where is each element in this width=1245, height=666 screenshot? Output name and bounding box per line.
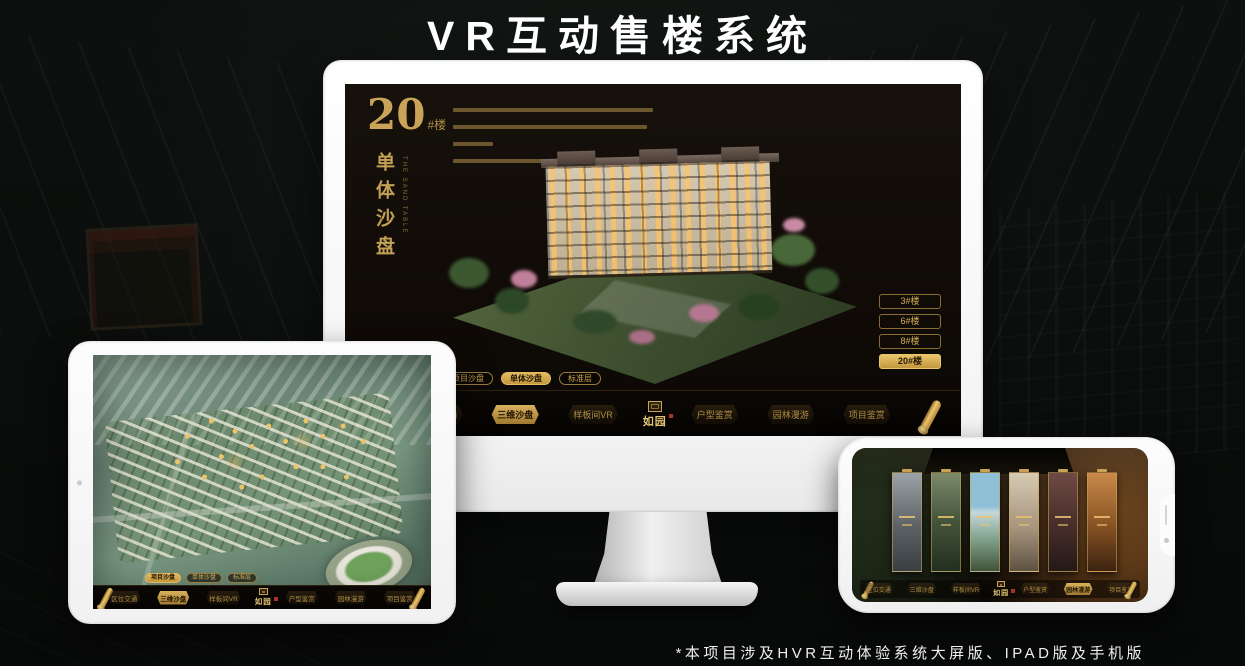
tablet-camera-icon [77,480,82,485]
building-model-scene[interactable] [453,142,857,388]
nav-item-unit-appreciation[interactable]: 户型鉴赏 [283,591,321,605]
aerial-estate[interactable] [104,392,403,563]
building-number: 20 [367,94,425,136]
floor-button-8[interactable]: 8#楼 [879,334,941,349]
nav-item-project-appreciation[interactable]: 项目鉴赏 [839,405,895,424]
nav-item-garden-roam-active[interactable]: 园林漫游 [1061,583,1095,595]
speaker-slit-icon [1165,505,1167,525]
front-camera-icon [1164,538,1169,543]
blossom-tree [511,270,537,288]
brand-logo: 如园 [993,581,1009,598]
subtab-single-sandbox[interactable]: 单体沙盘 [186,573,222,583]
scene-panel-facade[interactable] [1009,472,1039,572]
nav-item-3d-sandbox-active[interactable]: 三维沙盘 [487,405,543,424]
building-heading: 20#楼 [367,94,446,136]
blossom-tree [629,330,655,344]
brand-logo: 如园 [255,588,272,607]
panel-label [902,524,912,526]
nav-item-garden-roam[interactable]: 园林漫游 [763,405,819,424]
aerial-road [93,492,431,524]
tablet-frame: 项目沙盘 单体沙盘 标准层 区位交通 三维沙盘 样板间VR 如园 户型鉴赏 园林… [68,341,456,624]
seal-icon [259,588,268,595]
seal-icon [997,581,1005,587]
subtab-project-sandbox-active[interactable]: 项目沙盘 [145,573,181,583]
vertical-subtitle: 单体沙盘 [371,152,398,264]
footnote: *本项目涉及HVR互动体验系统大屏版、IPAD版及手机版 [676,642,1145,663]
building-markers[interactable] [93,355,431,609]
panel-label [1019,524,1029,526]
vertical-subtitle-en: THE SAND TABLE [401,156,407,234]
panel-label [899,516,915,518]
tree [771,234,815,266]
panel-label [977,516,993,518]
nav-item-unit-appreciation[interactable]: 户型鉴赏 [1018,583,1052,595]
tablet-device: 项目沙盘 单体沙盘 标准层 区位交通 三维沙盘 样板间VR 如园 户型鉴赏 园林… [68,341,456,624]
floor-button-group: 3#楼 6#楼 8#楼 20#楼 [879,294,941,369]
phone-screen: 区位交通 三维沙盘 样板间VR 如园 户型鉴赏 园林漫游 项目鉴赏 [852,448,1148,602]
nav-item-showroom-vr[interactable]: 样板间VR [948,583,984,595]
scene-panel-exterior-day[interactable] [970,472,1000,572]
tree [805,268,839,294]
subtab-standard-floor[interactable]: 标准层 [559,372,601,385]
nav-item-location-traffic[interactable]: 区位交通 [862,583,896,595]
roof-cap [721,146,759,160]
seal-icon [648,401,662,412]
phone-navbar: 区位交通 三维沙盘 样板间VR 如园 户型鉴赏 园林漫游 项目鉴赏 [860,580,1140,598]
tree [573,310,617,334]
floor-button-6[interactable]: 6#楼 [879,314,941,329]
background-framed-sign [85,223,202,331]
brand-logo: 如园 [643,401,667,429]
subtab-standard-floor[interactable]: 标准层 [227,573,257,583]
brand-logo-text: 如园 [993,588,1009,598]
background-buildings-right [999,190,1239,471]
scene-panel-interior[interactable] [1087,472,1117,572]
nav-item-location-traffic[interactable]: 区位交通 [105,591,143,605]
aerial-city-blocks [93,355,431,445]
tablet-navbar: 区位交通 三维沙盘 样板间VR 如园 户型鉴赏 园林漫游 项目鉴赏 [93,585,431,609]
panel-label [1094,516,1110,518]
monitor-stand-neck [594,512,722,584]
scroll-ornament-icon [919,399,943,433]
brand-logo-text: 如园 [643,413,667,429]
brand-logo-text: 如园 [255,596,272,607]
panel-label [941,524,951,526]
phone-frame: 区位交通 三维沙盘 样板间VR 如园 户型鉴赏 园林漫游 项目鉴赏 [838,437,1175,613]
scene-panel-dusk[interactable] [1048,472,1078,572]
description-line [453,125,647,129]
tree [739,294,779,320]
tree [495,288,529,314]
stage: VR互动售楼系统 *本项目涉及HVR互动体验系统大屏版、IPAD版及手机版 20… [0,0,1245,666]
description-line [453,108,653,112]
scene-panel-garden[interactable] [931,472,961,572]
phone-device: 区位交通 三维沙盘 样板间VR 如园 户型鉴赏 园林漫游 项目鉴赏 [838,437,1175,613]
nav-item-garden-roam[interactable]: 园林漫游 [332,591,370,605]
nav-item-showroom-vr[interactable]: 样板间VR [203,591,244,605]
floor-button-20-active[interactable]: 20#楼 [879,354,941,369]
monitor-subtabs: 项目沙盘 单体沙盘 标准层 [443,372,601,385]
tree [449,258,489,288]
scene-panel-courtyard[interactable] [892,472,922,572]
nav-item-3d-sandbox-active[interactable]: 三维沙盘 [154,591,192,605]
model-building [546,161,773,279]
tablet-screen: 项目沙盘 单体沙盘 标准层 区位交通 三维沙盘 样板间VR 如园 户型鉴赏 园林… [93,355,431,609]
panel-label [1016,516,1032,518]
panel-label [980,524,990,526]
monitor-stand-base [556,582,758,606]
tablet-subtabs: 项目沙盘 单体沙盘 标准层 [145,573,257,583]
panel-label [1097,524,1107,526]
phone-notch [1160,494,1175,556]
nav-item-3d-sandbox[interactable]: 三维沙盘 [905,583,939,595]
page-title: VR互动售楼系统 [0,2,1245,62]
panel-label [1055,516,1071,518]
panel-label [938,516,954,518]
subtab-single-sandbox-active[interactable]: 单体沙盘 [501,372,551,385]
panel-label [1058,524,1068,526]
roof-cap [557,151,595,165]
blossom-tree [689,304,719,322]
blossom-tree [783,218,805,232]
building-number-suffix: #楼 [427,116,446,133]
floor-button-3[interactable]: 3#楼 [879,294,941,309]
scene-panels [892,472,1117,572]
nav-item-showroom-vr[interactable]: 样板间VR [563,405,623,424]
nav-item-unit-appreciation[interactable]: 户型鉴赏 [687,405,743,424]
roof-cap [639,149,677,163]
